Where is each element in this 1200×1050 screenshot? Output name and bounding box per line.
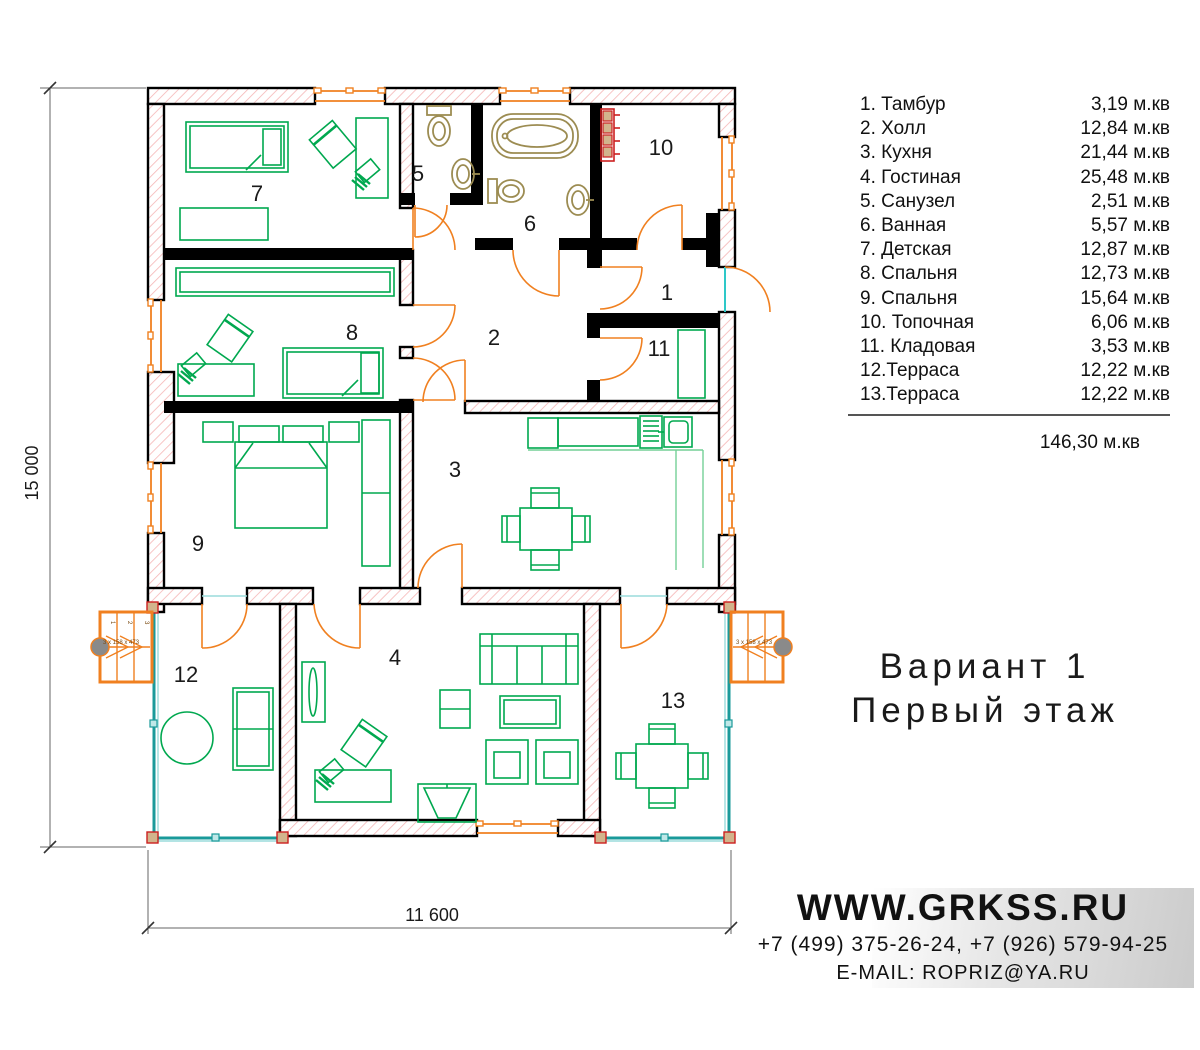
legend-row: 1. Тамбур3,19 м.кв [848,93,1170,117]
room-label-3: 3 [449,457,461,482]
desk-room4 [315,770,391,802]
door-kitchen [423,360,465,402]
door-room5 [415,205,447,237]
bench-terrace12 [233,688,273,770]
stair-step-2: 2 [126,621,132,625]
legend-room-name: 5. Санузел [848,190,955,214]
window-top-room6 [499,88,570,101]
bed-room9 [203,422,359,528]
dresser-room7 [180,208,268,240]
door-room10 [637,205,682,250]
legend-room-area: 12,22 м.кв [1080,383,1170,407]
legend-row: 12.Терраса12,22 м.кв [848,359,1170,383]
exterior-walls [148,88,735,836]
legend-room-area: 3,19 м.кв [1091,93,1170,117]
door-room4-kitchen [418,544,462,588]
door-terrace13 [621,604,667,648]
computer-room4 [316,759,344,790]
legend-room-name: 10. Топочная [848,311,974,335]
legend-room-area: 5,57 м.кв [1091,214,1170,238]
plan-title-line2: Первый этаж [780,689,1190,733]
door-room1 [600,267,642,309]
phone-numbers: +7 (499) 375-26-24, +7 (926) 579-94-25 [728,930,1198,960]
room-label-9: 9 [192,531,204,556]
legend-row: 4. Гостиная25,48 м.кв [848,166,1170,190]
room-label-11: 11 [648,336,671,361]
legend-room-area: 12,87 м.кв [1080,238,1170,262]
room-label-4: 4 [389,645,401,670]
plan-title: Вариант 1 Первый этаж [780,645,1190,733]
armchair-room4-a [486,740,528,784]
website-link[interactable]: WWW.GRKSS.RU [728,886,1198,930]
door-terrace12 [202,604,247,648]
room-label-7: 7 [251,181,263,206]
legend-room-name: 4. Гостиная [848,166,961,190]
legend-room-name: 1. Тамбур [848,93,946,117]
room-label-10: 10 [649,135,673,160]
email-address[interactable]: E-MAIL: ROPRIZ@YA.RU [728,960,1198,986]
door-room7 [413,208,455,250]
coffee-table-room4 [500,696,560,728]
computer-room8 [178,353,206,384]
round-table-terrace12 [161,712,213,764]
stair-note-left: 3 x 158 x 473 [103,640,140,646]
side-table-room4 [440,690,470,728]
dimension-height: 15 000 [22,82,146,853]
sofa-room4 [480,634,578,684]
legend-room-area: 15,64 м.кв [1080,287,1170,311]
shelf-room11 [678,330,705,398]
window-left-room8 [148,299,161,372]
legend-room-name: 9. Спальня [848,287,957,311]
desk-room8 [178,364,254,396]
door-room6 [513,250,559,296]
stair-step-3: 3 [143,621,149,625]
door-room11 [600,338,642,380]
sink-room6 [567,185,594,215]
legend-room-area: 6,06 м.кв [1091,311,1170,335]
door-room4-left [314,604,360,648]
room-label-5: 5 [412,161,424,186]
tv-cabinet-room4 [302,662,325,722]
legend-room-name: 3. Кухня [848,141,932,165]
legend-row: 8. Спальня12,73 м.кв [848,262,1170,286]
legend-row: 13.Терраса12,22 м.кв [848,383,1170,407]
dim-height-label: 15 000 [22,445,42,500]
legend-row: 5. Санузел2,51 м.кв [848,190,1170,214]
window-left-room9 [148,462,161,533]
legend-room-area: 25,48 м.кв [1080,166,1170,190]
shelf-room8 [176,268,394,296]
legend-row: 10. Топочная6,06 м.кв [848,311,1170,335]
window-top-room7 [314,88,385,101]
window-bottom-room4 [476,821,558,833]
room-label-2: 2 [488,325,500,350]
room-label-12: 12 [174,662,198,687]
fireplace-room4 [418,784,476,822]
legend-room-name: 13.Терраса [848,383,959,407]
room-label-13: 13 [661,688,685,713]
door-room8 [413,305,455,347]
legend-room-name: 8. Спальня [848,262,957,286]
legend-room-area: 3,53 м.кв [1091,335,1170,359]
room-label-8: 8 [346,320,358,345]
contact-block: WWW.GRKSS.RU +7 (499) 375-26-24, +7 (926… [728,886,1198,986]
table-terrace13 [616,724,708,808]
radiator-room10 [601,109,620,161]
legend-row: 7. Детская12,87 м.кв [848,238,1170,262]
room-legend: 1. Тамбур3,19 м.кв 2. Холл12,84 м.кв 3. … [848,93,1170,454]
chair-room4 [341,719,387,767]
legend-room-name: 2. Холл [848,117,926,141]
furniture [161,118,708,822]
legend-room-area: 2,51 м.кв [1091,190,1170,214]
dimension-width: 11 600 [142,850,737,934]
bed-room7 [186,122,288,172]
legend-room-area: 12,84 м.кв [1080,117,1170,141]
legend-row: 9. Спальня15,64 м.кв [848,287,1170,311]
dim-width-label: 11 600 [405,905,459,925]
legend-row: 6. Ванная5,57 м.кв [848,214,1170,238]
toilet-room6 [488,179,524,203]
windows [148,88,734,833]
terrace-railings [147,602,735,843]
wardrobe-room9 [362,420,390,566]
legend-room-name: 12.Терраса [848,359,959,383]
legend-row: 3. Кухня21,44 м.кв [848,141,1170,165]
legend-separator [848,414,1170,416]
armchair-room4-b [536,740,578,784]
door-room9 [413,358,455,400]
bed-room8 [283,348,383,398]
legend-room-area: 21,44 м.кв [1080,141,1170,165]
legend-room-name: 6. Ванная [848,214,946,238]
legend-room-name: 11. Кладовая [848,335,975,359]
toilet-room5 [427,106,451,146]
window-right-kitchen [722,459,734,535]
chair-room8 [207,314,253,362]
stair-note-right: 3 x 158 x 473 [736,640,773,646]
legend-row: 11. Кладовая3,53 м.кв [848,335,1170,359]
room-label-6: 6 [524,211,536,236]
room-label-1: 1 [661,280,673,305]
door-entrance-exterior [725,267,770,312]
legend-room-area: 12,73 м.кв [1080,262,1170,286]
stairs-left: 3 x 158 x 473 1 2 3 [91,612,152,682]
stair-step-1: 1 [109,621,115,625]
dining-table-kitchen [502,488,590,570]
legend-room-area: 12,22 м.кв [1080,359,1170,383]
window-right-room10 [722,136,734,210]
chair-room7 [309,121,356,169]
legend-room-name: 7. Детская [848,238,952,262]
legend-row: 2. Холл12,84 м.кв [848,117,1170,141]
legend-total-area: 146,30 м.кв [848,432,1170,454]
room-labels: 1 2 3 4 5 6 7 8 9 10 11 12 13 [174,135,685,713]
plan-title-line1: Вариант 1 [780,645,1190,689]
bathtub-room6 [492,114,578,158]
